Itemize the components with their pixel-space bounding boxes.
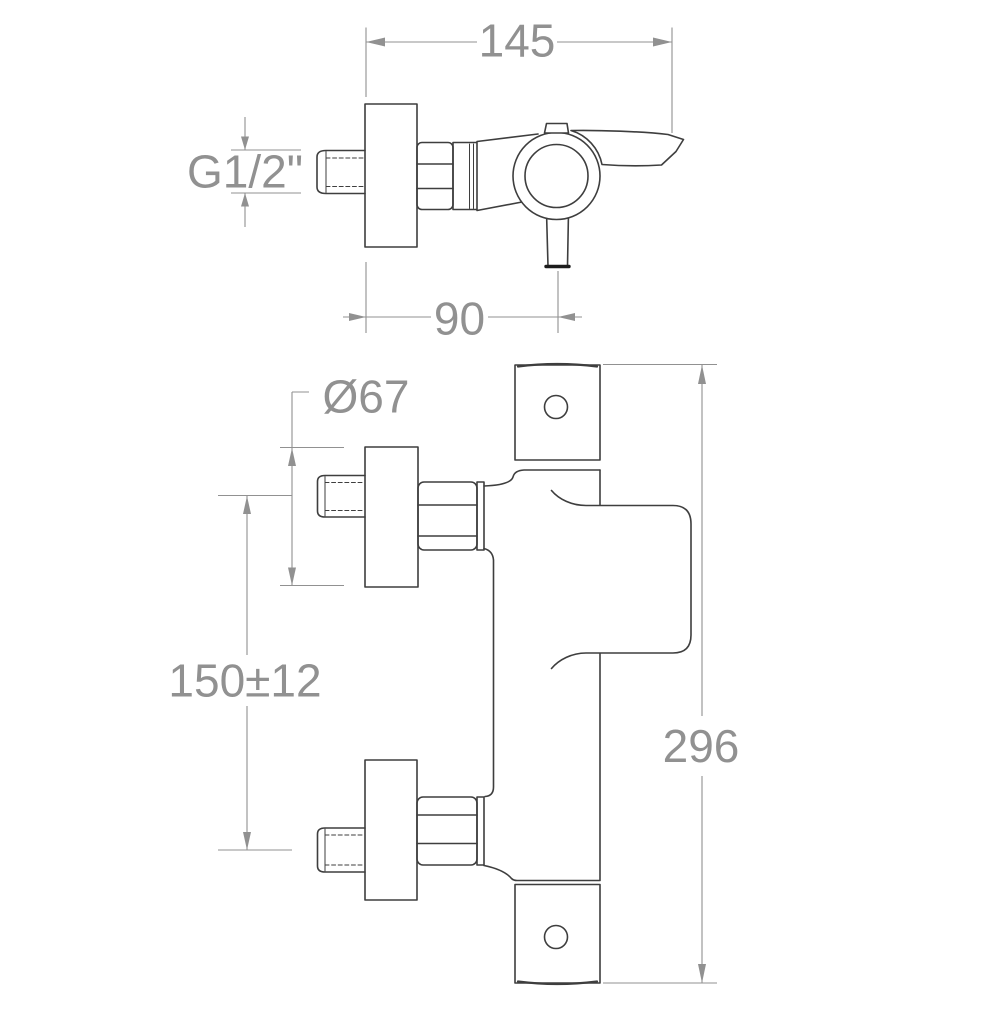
nipple-threads-lower [325,835,364,865]
nut-collar-lower [477,797,484,865]
wall-flange [365,104,417,247]
dim-145-arrow-right [653,38,672,47]
body-neck-outline [484,470,600,486]
body-bottom-outline [484,866,600,881]
dim-150-arrow-bottom [243,832,251,850]
thread-nipple [317,151,365,194]
bracket-screw-hole-top [545,396,568,419]
nipple-thread-lines [326,158,364,187]
dim-label-wall-to-outlet: 90 [434,293,485,345]
dim-90-arrow-left [349,313,366,321]
mounting-bracket-bottom [515,885,600,984]
dim-label-overall-width: 145 [479,15,556,67]
handle-tab [545,124,569,134]
top-view: 145 G1/2" 90 [187,15,684,345]
dim-67-arrow-bottom [288,568,296,586]
mounting-nut-lower [417,797,477,865]
top-view-outlines [317,104,684,267]
front-view-dim-labels: Ø67 150±12 296 [168,365,739,983]
valve-cap-outer-circle [513,133,600,220]
dim-90-arrow-right [558,313,575,321]
mounting-nut-upper [418,482,477,550]
dim-label-inlet-spacing: 150±12 [168,655,321,707]
bracket-screw-hole-bottom [545,926,568,949]
front-view-outlines [318,364,692,984]
nut-facet-lines [417,164,453,189]
nut-collar-upper [477,482,484,550]
front-view: Ø67 150±12 296 [168,364,739,984]
dim-67-arrow-top [288,448,296,466]
dim-label-overall-height: 296 [663,720,740,772]
collar-groove-lines [470,144,474,209]
wall-flange-upper [365,447,418,587]
dim-67-leader [292,392,309,586]
shower-mixer-technical-drawing: 145 G1/2" 90 [0,0,1000,1020]
nut-facets-upper [418,505,477,536]
nut-facets-lower [417,815,477,844]
front-view-dimensions: Ø67 150±12 296 [168,365,739,984]
dim-296-arrow-top [698,365,706,384]
nipple-threads-upper [325,483,364,511]
dim-150-arrow-top [243,496,251,514]
dim-label-flange-diameter: Ø67 [323,371,410,423]
dim-label-thread-size: G1/2" [187,146,303,198]
dim-296-arrow-bottom [698,964,706,983]
wall-flange-lower [365,760,417,900]
mounting-bracket-top [515,365,600,460]
dim-145-arrow-left [366,38,385,47]
control-knob-profile [552,491,692,669]
dim-296-extension-lines [603,365,717,984]
body-left-outline [484,549,494,797]
drawing-canvas: 145 G1/2" 90 [0,0,1000,1020]
mounting-nut [417,143,453,210]
